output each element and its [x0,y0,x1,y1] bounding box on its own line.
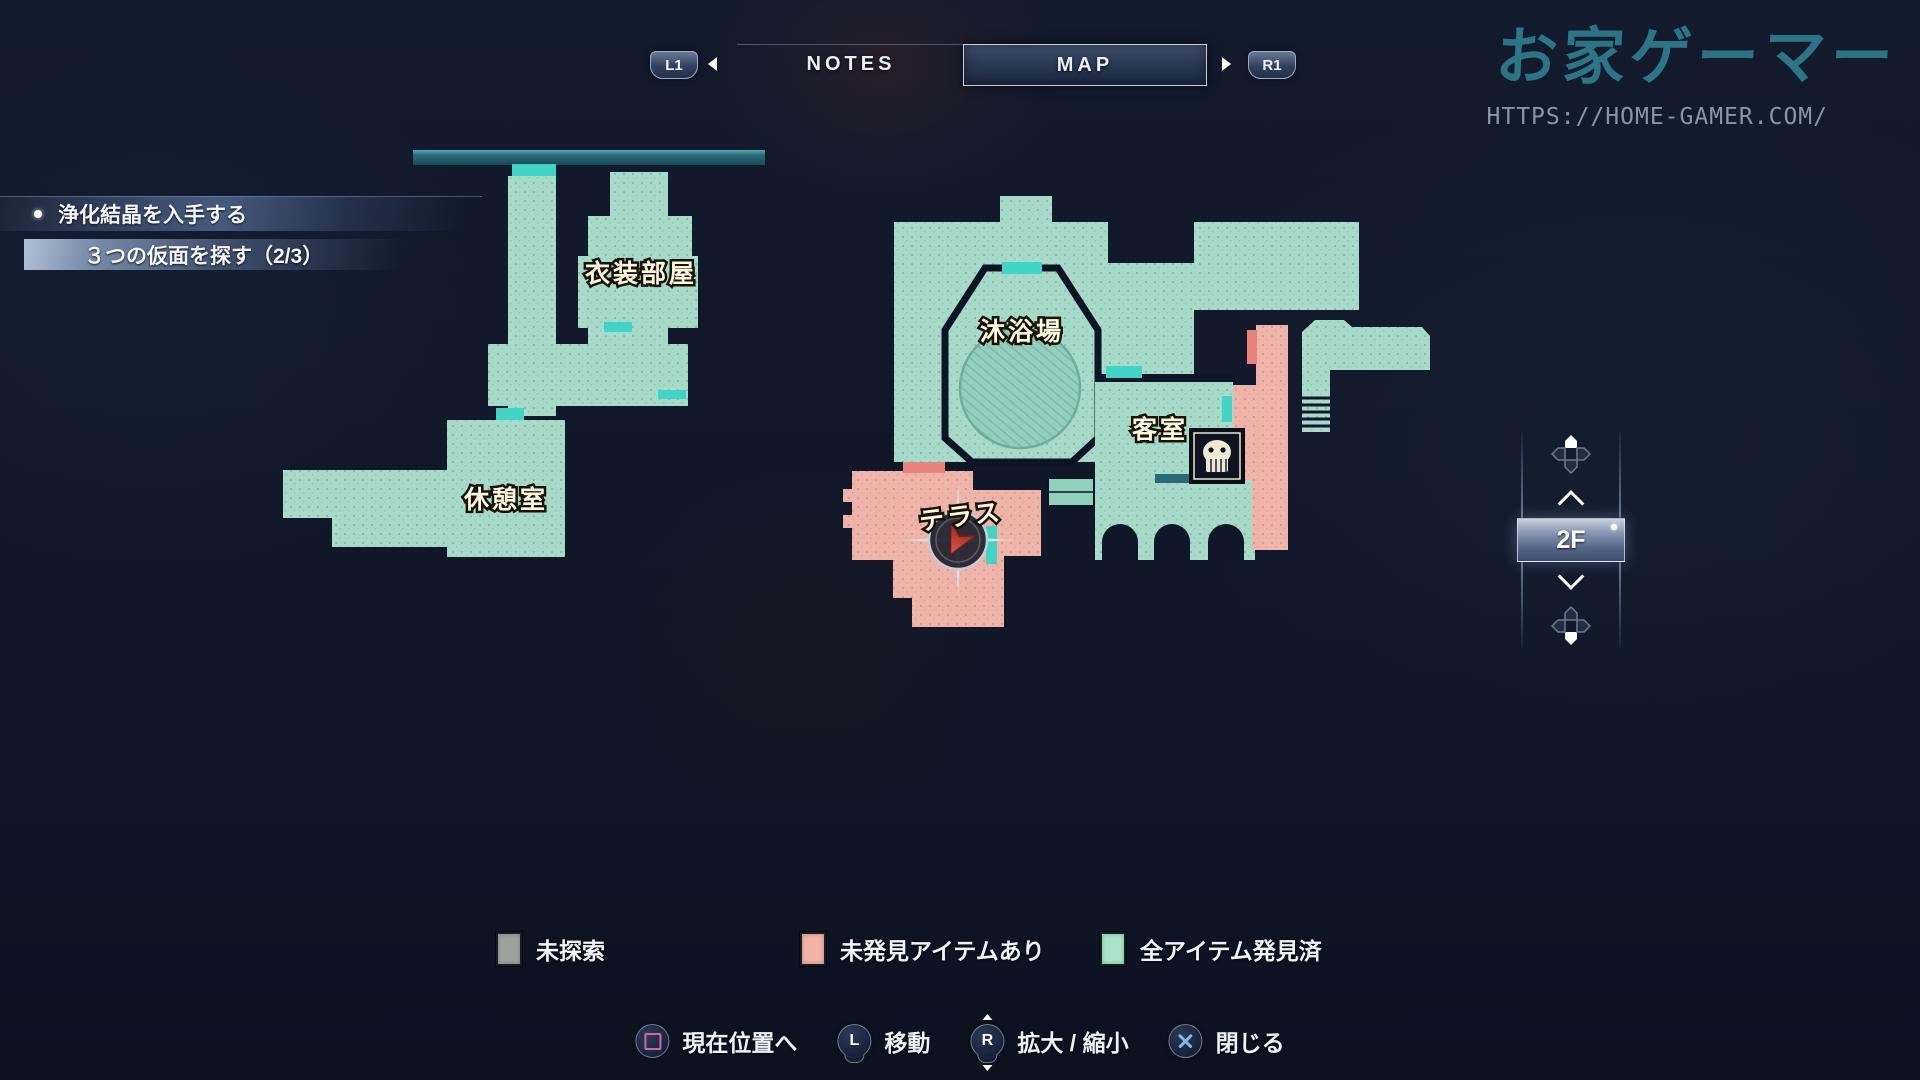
current-floor-label: 2F [1556,526,1585,555]
control-zoom: R 拡大 / 縮小 [970,1024,1128,1058]
map-bath-pool [960,328,1080,448]
room-label-guest-room: 客室 [1132,415,1188,444]
legend-unexplored: 未探索 [496,932,605,966]
map-balcony-bar [413,150,765,165]
legend-unexplored-label: 未探索 [536,932,605,966]
dpad-down-icon[interactable] [1551,606,1591,646]
control-move-label: 移動 [884,1024,930,1058]
map-canvas[interactable]: 衣装部屋 沐浴場 客室 休憩室 テラス [0,0,1920,1080]
map-arch-cutouts [1102,524,1244,562]
room-label-rest-room: 休憩室 [463,485,548,514]
right-stick-icon[interactable]: R [970,1024,1004,1058]
floor-down-chevron-icon[interactable] [1558,563,1585,590]
square-glyph [644,1033,661,1050]
floor-selector: 2F [1512,432,1630,648]
caret-up-icon [982,1014,992,1020]
button-prompt-bar: 現在位置へ L 移動 R 拡大 / 縮小 閉じる [635,1024,1284,1058]
floor-indicator-dot [1611,524,1617,530]
current-floor-indicator: 2F [1517,518,1625,562]
legend-items-remaining: 未発見アイテムあり [800,932,1045,966]
cross-glyph [1178,1033,1194,1049]
legend-unexplored-swatch [496,932,522,966]
control-move: L 移動 [837,1024,930,1058]
dpad-up-icon[interactable] [1551,434,1591,474]
room-label-costume-room: 衣装部屋 [585,259,697,288]
control-close-label: 閉じる [1216,1024,1285,1058]
legend-items-remaining-swatch [800,932,826,966]
floor-up-chevron-icon[interactable] [1558,490,1585,517]
control-close: 閉じる [1169,1024,1285,1058]
control-current-position: 現在位置へ [635,1024,797,1058]
room-label-bathing-area: 沐浴場 [980,317,1064,346]
left-stick-icon[interactable]: L [837,1024,871,1058]
right-stick-letter: R [982,1032,994,1050]
legend-all-items-found-swatch [1100,932,1126,966]
control-current-position-label: 現在位置へ [682,1024,797,1058]
caret-down-icon [982,1065,992,1071]
cross-button-icon[interactable] [1169,1024,1203,1058]
square-button-icon[interactable] [635,1024,669,1058]
legend-items-remaining-label: 未発見アイテムあり [840,932,1045,966]
map-stair-corridor [1302,320,1430,432]
legend-all-items-found: 全アイテム発見済 [1100,932,1322,966]
control-zoom-label: 拡大 / 縮小 [1017,1024,1128,1058]
legend-all-items-found-label: 全アイテム発見済 [1140,932,1322,966]
mask-item-icon [1189,428,1245,484]
left-stick-letter: L [850,1032,860,1050]
